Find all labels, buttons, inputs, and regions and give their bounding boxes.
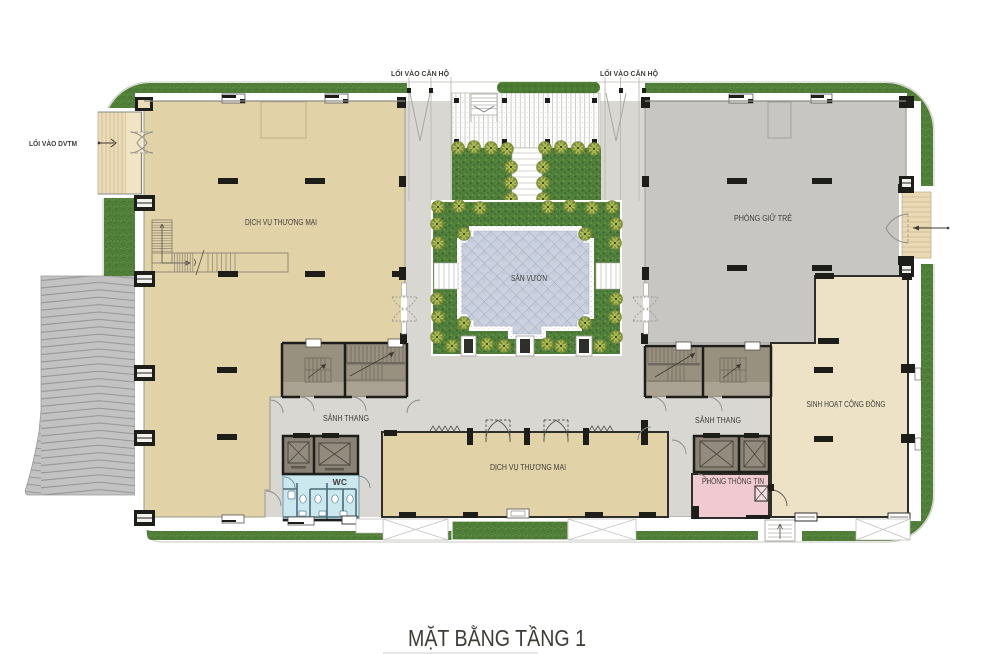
svg-text:WC: WC [333,477,348,487]
svg-text:LỐI VÀO DVTM: LỐI VÀO DVTM [29,138,77,148]
svg-text:SÂN VƯỜN: SÂN VƯỜN [511,274,547,283]
svg-text:LỐI VÀO CĂN HỘ: LỐI VÀO CĂN HỘ [600,68,658,78]
svg-text:MẶT BẰNG TẦNG 1: MẶT BẰNG TẦNG 1 [408,624,586,651]
svg-text:SẢNH THANG: SẢNH THANG [323,414,369,423]
svg-text:DỊCH VỤ THƯƠNG MẠI: DỊCH VỤ THƯƠNG MẠI [245,218,317,227]
svg-text:PHÒNG GIỮ TRẺ: PHÒNG GIỮ TRẺ [734,214,792,223]
svg-text:SẢNH THANG: SẢNH THANG [695,416,741,425]
svg-text:LỐI VÀO CĂN HỘ: LỐI VÀO CĂN HỘ [391,68,449,78]
svg-text:SINH HOẠT CỘNG ĐỒNG: SINH HOẠT CỘNG ĐỒNG [807,399,886,409]
svg-text:DỊCH VỤ THƯƠNG MẠI: DỊCH VỤ THƯƠNG MẠI [490,463,566,472]
svg-text:PHÒNG THÔNG TIN: PHÒNG THÔNG TIN [702,477,764,486]
